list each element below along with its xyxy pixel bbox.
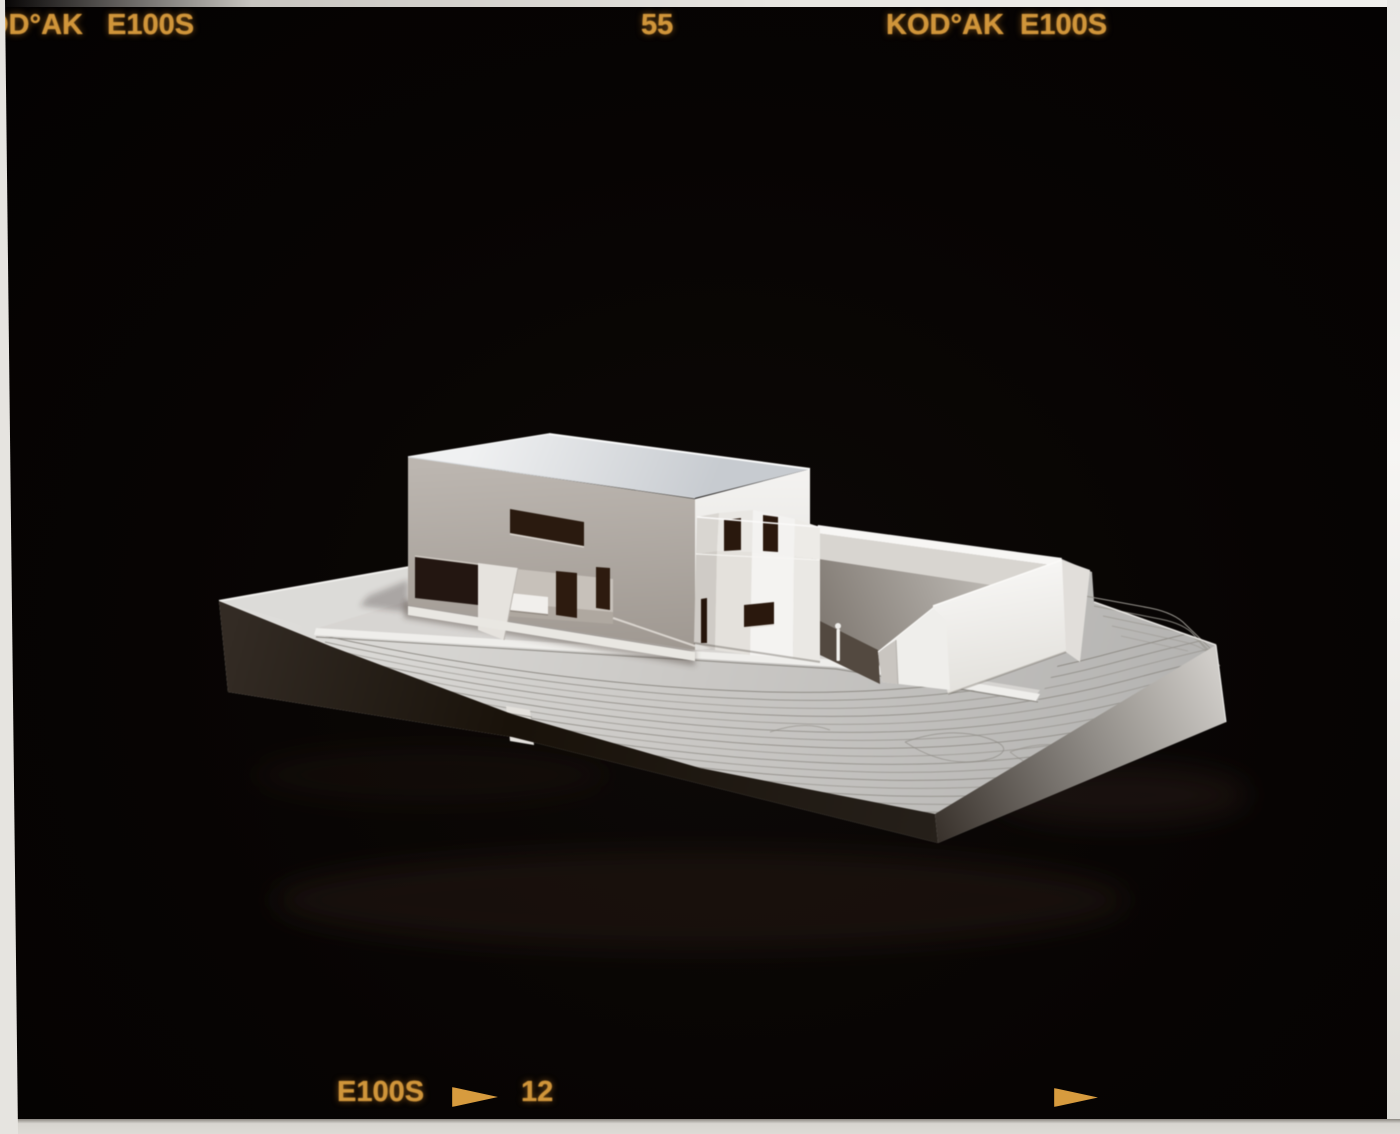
scan-border-bottom <box>0 1119 1400 1134</box>
bay-tower <box>694 510 820 662</box>
slot-window <box>596 567 610 610</box>
architectural-model-photo <box>0 0 1400 1134</box>
carport-opening <box>415 557 478 605</box>
scan-border-right <box>1387 0 1400 1134</box>
film-frame-number-bottom: 12 <box>521 1077 553 1107</box>
film-frame-number-top: 55 <box>641 10 673 40</box>
tower-slit-window <box>701 598 707 643</box>
door-opening <box>556 571 577 618</box>
film-edge-marking-top-left-stock: E100S <box>107 10 194 40</box>
tower-window-lower <box>744 602 774 627</box>
scan-border-top <box>0 0 1400 7</box>
film-frame-scan: OD°AK E100S 55 KOD°AK E100S E100S 12 <box>0 0 1400 1134</box>
tower-window-upper-left <box>724 518 741 551</box>
film-edge-marking-top-left-brand: OD°AK <box>0 10 83 40</box>
film-edge-marking-top-right-brand: KOD°AK <box>886 10 1004 40</box>
film-edge-marking-bottom-stock: E100S <box>337 1077 424 1107</box>
tower-window-upper-right <box>763 515 778 552</box>
film-edge-marking-top-right-stock: E100S <box>1020 10 1107 40</box>
